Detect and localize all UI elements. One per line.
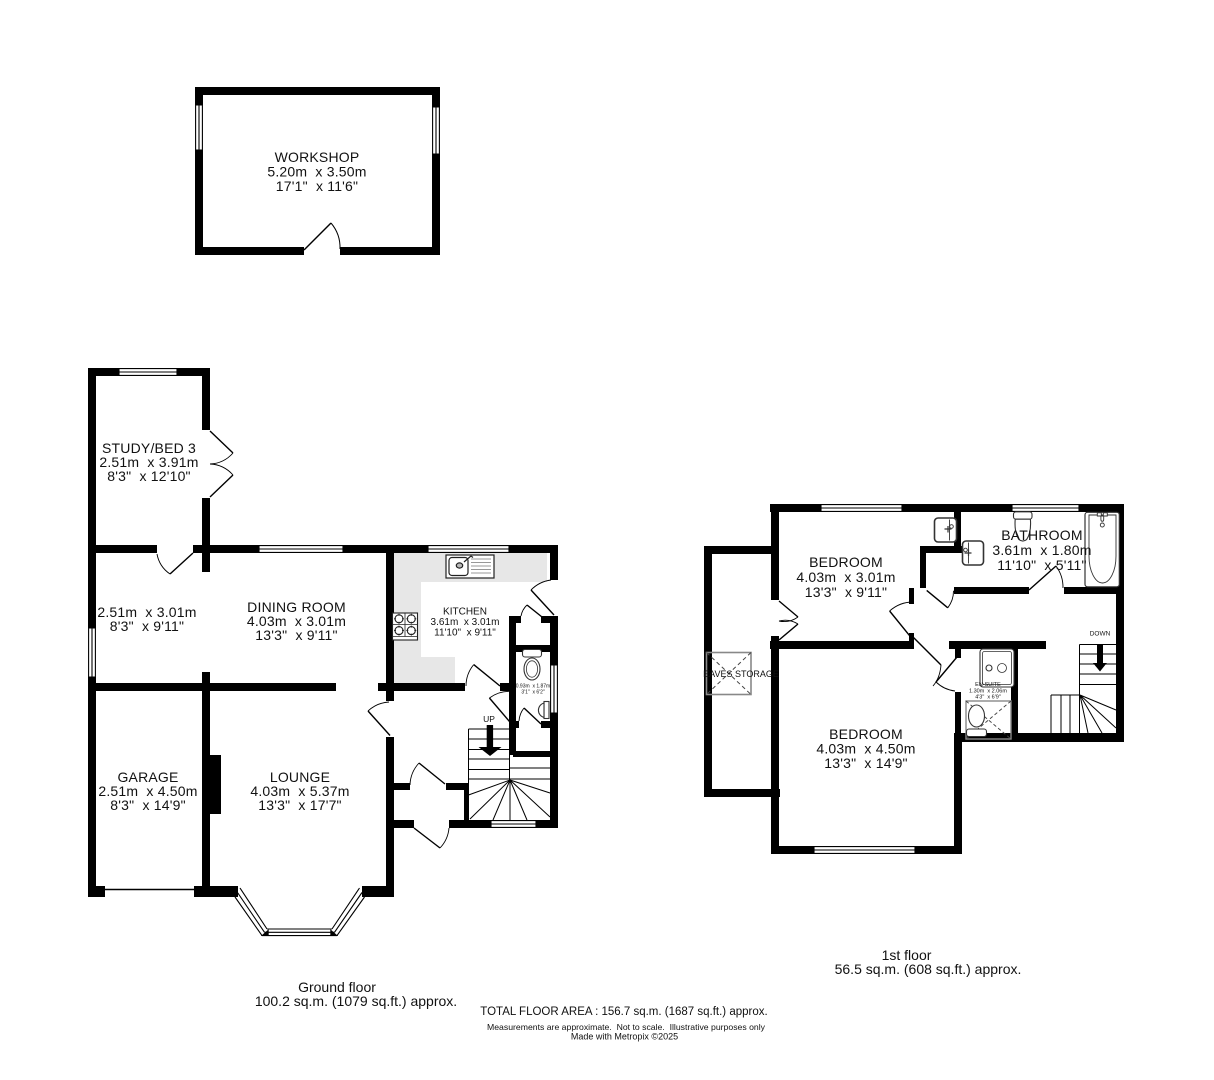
svg-text:EN-SUITE: EN-SUITE (975, 682, 1001, 688)
svg-text:Made with Metropix ©2025: Made with Metropix ©2025 (571, 1032, 678, 1042)
svg-text:DOWN: DOWN (1090, 631, 1111, 638)
svg-text:4'3" x 6'9": 4'3" x 6'9" (975, 694, 1001, 700)
svg-text:3'1" x 6'2": 3'1" x 6'2" (521, 690, 544, 696)
svg-text:BATHROOM: BATHROOM (1001, 527, 1082, 543)
svg-text:11'10" x 9'11": 11'10" x 9'11" (434, 628, 496, 639)
svg-text:4.03m x 3.01m: 4.03m x 3.01m (796, 569, 895, 585)
svg-text:Measurements are approximate.: Measurements are approximate. Not to sca… (487, 1022, 766, 1032)
svg-text:3.61m x 3.01m: 3.61m x 3.01m (431, 617, 500, 628)
svg-text:8'3" x 12'10": 8'3" x 12'10" (107, 468, 190, 484)
svg-text:11'10" x 5'11": 11'10" x 5'11" (997, 557, 1086, 573)
svg-text:56.5 sq.m. (608 sq.ft.) approx: 56.5 sq.m. (608 sq.ft.) approx. (835, 961, 1022, 977)
svg-text:EAVES STORAGE: EAVES STORAGE (703, 669, 779, 679)
svg-text:8'3" x 9'11": 8'3" x 9'11" (110, 618, 184, 634)
svg-text:13'3" x 9'11": 13'3" x 9'11" (805, 584, 887, 600)
svg-text:UP: UP (483, 714, 495, 724)
svg-text:13'3" x 14'9": 13'3" x 14'9" (824, 755, 907, 771)
svg-text:8'3" x 14'9": 8'3" x 14'9" (110, 797, 186, 813)
svg-text:3.61m x 1.80m: 3.61m x 1.80m (992, 542, 1091, 558)
svg-text:17'1" x 11'6": 17'1" x 11'6" (276, 178, 358, 194)
svg-text:KITCHEN: KITCHEN (443, 607, 487, 618)
svg-text:100.2 sq.m. (1079 sq.ft.) appr: 100.2 sq.m. (1079 sq.ft.) approx. (255, 993, 457, 1009)
svg-text:13'3" x 9'11": 13'3" x 9'11" (255, 627, 337, 643)
svg-text:TOTAL FLOOR AREA : 156.7 sq.m.: TOTAL FLOOR AREA : 156.7 sq.m. (1687 sq.… (480, 1006, 767, 1018)
svg-text:BEDROOM: BEDROOM (809, 554, 883, 570)
svg-text:13'3" x 17'7": 13'3" x 17'7" (258, 797, 341, 813)
